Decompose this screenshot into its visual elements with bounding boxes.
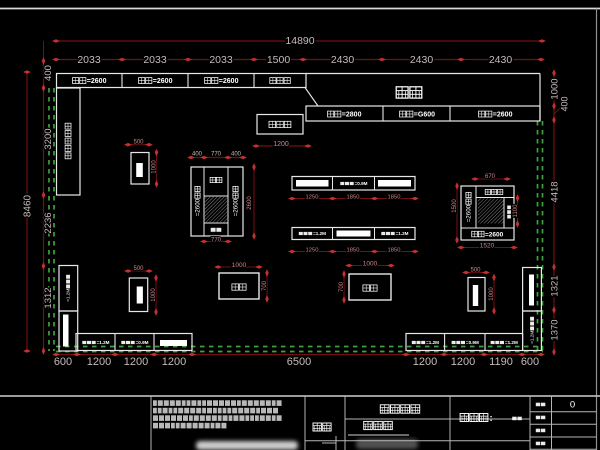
svg-text:600: 600 <box>521 356 539 368</box>
svg-text:1190: 1190 <box>489 356 513 368</box>
svg-text:670: 670 <box>485 174 496 180</box>
svg-text:1850: 1850 <box>388 195 401 201</box>
svg-text:700: 700 <box>339 281 345 292</box>
svg-text:1850: 1850 <box>347 248 360 254</box>
svg-text:1250: 1250 <box>306 195 319 201</box>
svg-text:=2600: =2600 <box>485 231 504 238</box>
svg-text:400: 400 <box>231 151 242 157</box>
svg-text:6500: 6500 <box>287 356 311 368</box>
svg-text:1520: 1520 <box>480 243 495 250</box>
svg-text:=2600: =2600 <box>153 78 173 85</box>
svg-text:500: 500 <box>470 267 481 273</box>
svg-text:1000: 1000 <box>232 262 247 269</box>
svg-text:2236: 2236 <box>43 212 54 233</box>
svg-text:770: 770 <box>211 151 222 157</box>
svg-text:=0.9M: =0.9M <box>466 340 479 345</box>
svg-text:400: 400 <box>192 151 203 157</box>
svg-text:2033: 2033 <box>143 54 167 66</box>
svg-text:2600: 2600 <box>247 196 253 210</box>
svg-text:1000: 1000 <box>363 261 378 268</box>
svg-text:2430: 2430 <box>410 54 434 66</box>
svg-text:1200: 1200 <box>87 356 111 368</box>
svg-text:=1.2M: =1.2M <box>97 340 110 345</box>
svg-text:1321: 1321 <box>549 275 560 296</box>
svg-text::: : <box>490 413 493 424</box>
svg-text:=2600: =2600 <box>195 198 202 216</box>
svg-text:4418: 4418 <box>549 181 560 202</box>
svg-text:770: 770 <box>211 238 222 244</box>
svg-text:=0.9M: =0.9M <box>355 181 368 186</box>
svg-text:=1.2M: =1.2M <box>66 289 71 302</box>
svg-text:1000: 1000 <box>489 287 495 301</box>
svg-text:2033: 2033 <box>77 54 101 66</box>
svg-text:1200: 1200 <box>162 356 186 368</box>
svg-text:2033: 2033 <box>209 54 233 66</box>
svg-text:=2600: =2600 <box>466 204 473 222</box>
svg-text:1250: 1250 <box>306 248 319 254</box>
svg-text:1850: 1850 <box>388 248 401 254</box>
svg-text:=1.2M: =1.2M <box>313 231 326 236</box>
svg-text:2430: 2430 <box>489 54 513 66</box>
svg-text:=1.2M: =1.2M <box>426 340 439 345</box>
svg-text:14890: 14890 <box>285 35 314 47</box>
svg-text:1200: 1200 <box>413 356 437 368</box>
svg-text:=1.2M: =1.2M <box>530 331 535 344</box>
svg-text:2430: 2430 <box>331 54 355 66</box>
svg-text:600: 600 <box>54 356 72 368</box>
svg-text:400: 400 <box>560 96 570 111</box>
svg-text:=2800: =2800 <box>342 112 362 119</box>
svg-text:500: 500 <box>133 266 144 272</box>
svg-text:=1.2M: =1.2M <box>396 231 409 236</box>
svg-text:1370: 1370 <box>549 319 560 340</box>
svg-text:1850: 1850 <box>347 195 360 201</box>
svg-text:1100: 1100 <box>513 204 519 218</box>
svg-text:=2600: =2600 <box>87 78 107 85</box>
svg-text:8460: 8460 <box>23 194 34 217</box>
svg-text:1200: 1200 <box>273 141 289 148</box>
svg-text:1000: 1000 <box>549 78 560 99</box>
svg-text:3200: 3200 <box>43 128 54 149</box>
svg-text:0: 0 <box>570 400 575 411</box>
svg-text:1500: 1500 <box>267 54 291 66</box>
svg-text:=2600: =2600 <box>493 112 513 119</box>
svg-text:=2600: =2600 <box>233 198 240 216</box>
svg-text:=2600: =2600 <box>219 78 239 85</box>
svg-text:1312: 1312 <box>43 287 54 308</box>
svg-text:1000: 1000 <box>151 288 157 302</box>
svg-text:=G600: =G600 <box>414 112 435 119</box>
svg-text:=1.2M: =1.2M <box>505 340 518 345</box>
svg-text:500: 500 <box>133 140 144 146</box>
svg-text:1500: 1500 <box>452 199 458 213</box>
svg-text:700: 700 <box>262 280 268 291</box>
svg-text:1200: 1200 <box>124 356 148 368</box>
svg-text:400: 400 <box>43 65 54 81</box>
svg-text:1200: 1200 <box>451 356 475 368</box>
svg-text:1000: 1000 <box>152 160 158 174</box>
svg-text:=0.9M: =0.9M <box>136 340 149 345</box>
